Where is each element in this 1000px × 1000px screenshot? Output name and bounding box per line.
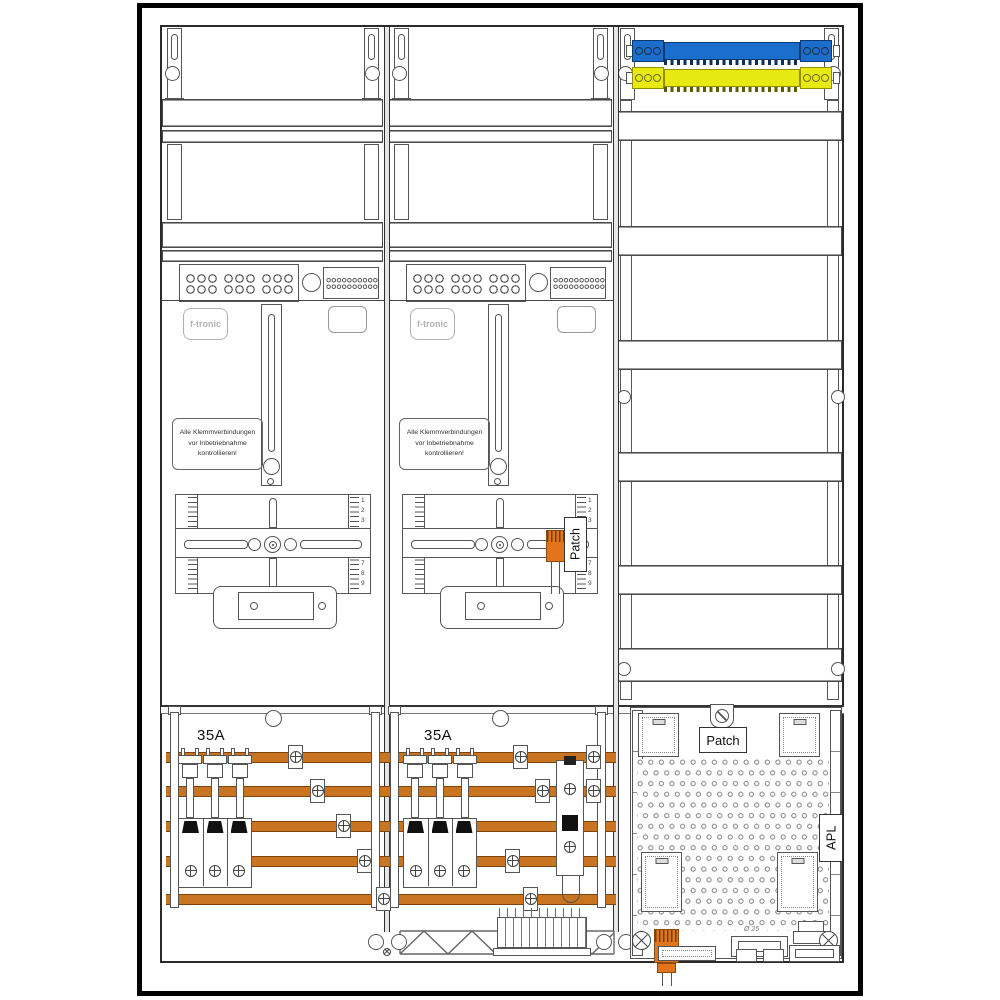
ruler-numbers-top: 1 2 3	[361, 496, 365, 526]
fuse-handle	[453, 755, 477, 764]
mounting-hole	[248, 538, 261, 551]
breaker-rating-label: 35A	[197, 727, 225, 744]
pe-busbar-teeth	[664, 87, 800, 92]
warning-line: vor Inbetriebnahme	[173, 439, 262, 450]
ruler-numbers-bottom: 7 8 9	[361, 559, 365, 589]
module-wire	[662, 973, 663, 986]
mounting-hole	[368, 934, 384, 950]
mounting-hole	[284, 538, 297, 551]
busbar-clamp	[833, 45, 840, 57]
mounting-hole	[617, 390, 631, 404]
din-rail-band	[389, 99, 612, 127]
busbar-clamp	[357, 849, 372, 873]
breaker-toggle	[562, 815, 578, 831]
warning-line: vor Inbetriebnahme	[400, 439, 489, 450]
cable-entry-frame	[777, 852, 818, 912]
fuse-handle	[428, 755, 452, 764]
warning-line: Alle Klemmverbindungen	[173, 428, 262, 439]
mounting-hole	[365, 66, 380, 81]
breaker-rating-label: 35A	[424, 727, 452, 744]
bracket-screw	[545, 602, 553, 610]
terminal-cluster	[450, 273, 483, 295]
breaker-body	[403, 818, 477, 888]
mounting-hole	[831, 390, 845, 404]
cross-vertical-arm	[496, 498, 504, 528]
terminal-cluster	[261, 273, 294, 295]
busbar-clamp	[505, 849, 520, 873]
busbar-clamp	[535, 779, 550, 803]
busbar-clamp	[336, 814, 351, 838]
cable-gland-note: Ø 25	[744, 926, 759, 933]
din-rail-band	[616, 565, 842, 595]
mounting-hole	[391, 934, 407, 950]
bottom-entry-frame	[763, 949, 784, 962]
busbar-clamp	[833, 72, 840, 84]
cross-vertical-arm	[269, 498, 277, 528]
terminal-block-left	[406, 264, 526, 302]
mounting-hole	[263, 458, 280, 475]
terminal-block-right	[550, 267, 606, 299]
mounting-hole	[475, 538, 488, 551]
meter-panel-edge	[161, 300, 385, 301]
rail-slot	[268, 314, 275, 452]
busbar-support	[390, 712, 399, 908]
din-rail-band	[616, 111, 842, 141]
neutral-busbar	[664, 42, 800, 60]
terminal-strip-base	[493, 948, 591, 956]
side-rail	[364, 144, 379, 220]
bottom-entry-frame	[789, 945, 840, 962]
din-rail-band	[616, 226, 842, 256]
cable-entry-frame	[779, 713, 820, 757]
mounting-hole	[302, 273, 321, 292]
fuse-handle	[403, 755, 427, 764]
warning-note: Alle Klemmverbindungen vor Inbetriebnahm…	[399, 418, 490, 470]
bottom-entry-frame	[736, 949, 757, 962]
din-rail-band	[616, 648, 842, 682]
connection-module-foot	[657, 963, 676, 973]
din-rail-band	[162, 222, 383, 248]
terminal-cluster	[579, 277, 605, 290]
terminal-cluster	[223, 273, 256, 295]
din-rail-band	[389, 250, 612, 262]
fuse-handle	[203, 755, 227, 764]
mounting-hole	[165, 66, 180, 81]
cross-slide-bar	[176, 528, 370, 558]
slide-slot	[184, 540, 248, 549]
din-rail-band	[389, 222, 612, 248]
mounting-hole	[494, 478, 501, 485]
breaker-body	[178, 818, 252, 888]
warning-note: Alle Klemmverbindungen vor Inbetriebnahm…	[172, 418, 263, 470]
rail-slot	[368, 34, 375, 60]
mounting-hole	[529, 273, 548, 292]
din-rail-band	[162, 99, 383, 127]
mounting-hole	[492, 710, 509, 727]
center-fixing-screw	[491, 536, 508, 553]
cable-entry-frame	[641, 852, 682, 912]
mounting-hole	[267, 478, 274, 485]
din-rail-band	[389, 130, 612, 143]
module-wire	[671, 973, 672, 986]
terminal-block-right	[323, 267, 379, 299]
din-rail-band	[162, 130, 383, 143]
fuse-handle	[178, 755, 202, 764]
busbar-clamp	[376, 887, 391, 911]
din-rail-band	[616, 340, 842, 370]
bracket-screw	[318, 602, 326, 610]
brand-logo: f-tronic	[183, 308, 228, 340]
meter-bracket	[440, 586, 564, 629]
pe-busbar	[800, 67, 832, 89]
busbar-clamp	[586, 779, 601, 803]
ruler-numbers-top: 1 2 3	[588, 496, 592, 526]
busbar-support	[371, 712, 380, 908]
bracket-screw	[250, 602, 258, 610]
terminal-cluster	[412, 273, 445, 295]
terminal-cluster	[352, 277, 378, 290]
terminal-block-left	[179, 264, 299, 302]
patch-module-wire	[559, 560, 560, 594]
center-fixing-screw	[264, 536, 281, 553]
apl-label: APL	[819, 814, 843, 862]
neutral-busbar	[632, 40, 664, 62]
brand-logo: f-tronic	[410, 308, 455, 340]
sls-switch-35a-1	[178, 748, 252, 888]
slide-slot	[300, 540, 362, 549]
cable-entry-frame	[638, 713, 679, 757]
busbar-clamp	[586, 745, 601, 769]
terminal-cluster	[488, 273, 521, 295]
rail-slot	[495, 314, 502, 452]
fuse-handle	[228, 755, 252, 764]
bottom-entry-frame	[658, 946, 716, 961]
patch-module	[546, 530, 566, 562]
patch-panel-label: Patch	[699, 727, 747, 753]
mounting-hole	[511, 538, 524, 551]
patch-module-label: Patch	[564, 517, 587, 572]
screw-bracket	[710, 704, 734, 728]
din-rail-band	[616, 452, 842, 482]
terminal-cluster	[326, 277, 352, 290]
warning-line: kontrollieren!	[400, 449, 489, 460]
bracket-screw	[477, 602, 485, 610]
mounting-hole	[265, 710, 282, 727]
wiring-diagram-page: f-tronic Alle Klemmverbindungen vor Inbe…	[0, 0, 1000, 1000]
mounting-hole	[596, 934, 612, 950]
rail-slot	[398, 34, 405, 60]
terminal-cluster	[185, 273, 218, 295]
busbar-clamp	[513, 745, 528, 769]
meter-panel-edge	[388, 300, 614, 301]
mounting-hole	[831, 662, 845, 676]
meter-bracket	[213, 586, 337, 629]
pe-busbar	[632, 67, 664, 89]
sls-switch-35a-2	[403, 748, 477, 888]
din-rail-band	[162, 250, 383, 262]
mounting-hole	[392, 66, 407, 81]
mounting-hole	[490, 458, 507, 475]
warning-line: Alle Klemmverbindungen	[400, 428, 489, 439]
ruler-numbers-bottom: 7 8 9	[588, 559, 592, 589]
terminal-cluster	[553, 277, 579, 290]
rail-slot	[597, 34, 604, 60]
busbar-support	[597, 712, 606, 908]
busbar-clamp	[310, 779, 325, 803]
blank-plate	[328, 306, 367, 333]
side-rail	[394, 144, 409, 220]
neutral-busbar	[800, 40, 832, 62]
terminal-strip	[497, 917, 587, 948]
neutral-busbar-teeth	[664, 60, 800, 65]
pe-busbar	[664, 69, 800, 87]
side-rail	[593, 144, 608, 220]
side-rail	[167, 144, 182, 220]
busbar-clamp	[288, 745, 303, 769]
blank-plate	[557, 306, 596, 333]
wire-loop	[562, 876, 580, 903]
warning-line: kontrollieren!	[173, 449, 262, 460]
terminal-strip-pins	[499, 908, 585, 917]
circuit-breaker-1p	[556, 760, 584, 876]
mounting-hole	[594, 66, 609, 81]
meter-mounting-cross: 1 2 3 7 8 9	[175, 494, 371, 594]
slide-slot	[411, 540, 475, 549]
patch-module-wire	[551, 560, 552, 594]
mounting-hole	[617, 662, 631, 676]
rail-slot	[171, 34, 178, 60]
